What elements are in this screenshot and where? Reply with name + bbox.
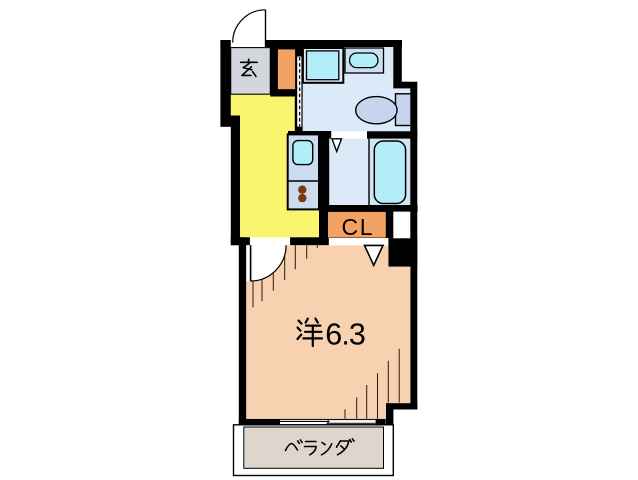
svg-text:CL: CL bbox=[341, 214, 374, 240]
svg-text:6.3: 6.3 bbox=[325, 318, 365, 352]
